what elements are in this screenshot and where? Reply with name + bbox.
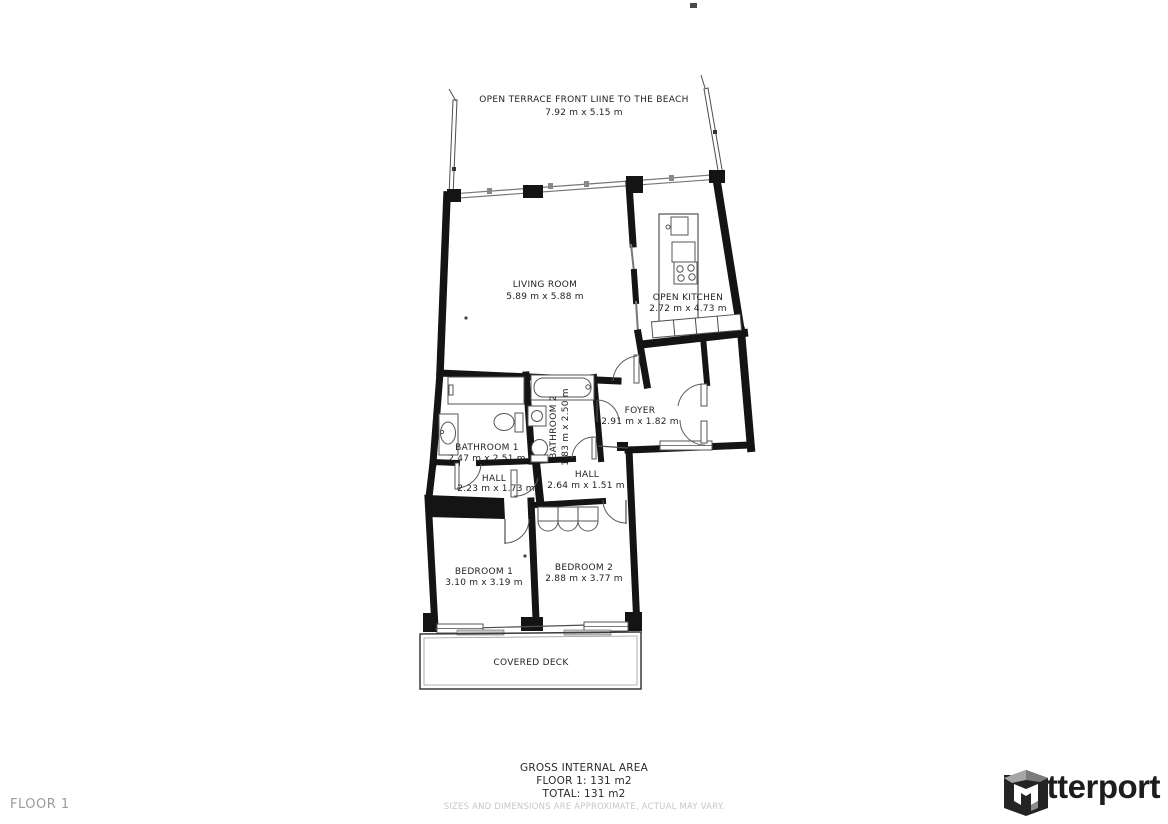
- floor-area-line: FLOOR 1: 131 m2: [384, 775, 784, 788]
- bathroom1-dims: 2.47 m x 2.51 m: [448, 454, 525, 464]
- area-summary: GROSS INTERNAL AREA FLOOR 1: 131 m2 TOTA…: [384, 762, 784, 813]
- shower: [448, 377, 524, 404]
- bedroom2-label: BEDROOM 2: [555, 563, 613, 573]
- burner-icon: [677, 266, 683, 272]
- door-leaf: [701, 421, 707, 443]
- floor-label: FLOOR 1: [10, 797, 70, 812]
- wall-bedroom1-band: [426, 495, 505, 519]
- gross-internal-area-title: GROSS INTERNAL AREA: [384, 762, 784, 775]
- terrace-dims: 7.92 m x 5.15 m: [545, 108, 622, 118]
- total-area-line: TOTAL: 131 m2: [384, 788, 784, 801]
- faucet-icon: [440, 430, 443, 433]
- stove: [674, 262, 697, 284]
- wall-bedroom2-right: [629, 450, 637, 627]
- toilet-icon: [532, 440, 548, 457]
- wall-hall2-bottom: [535, 501, 603, 505]
- bedroom2-dims: 2.88 m x 3.77 m: [545, 574, 622, 584]
- wall-foyer-entry-jamb: [703, 337, 707, 383]
- wall-tick: [713, 130, 717, 134]
- covered-deck-label: COVERED DECK: [493, 658, 569, 668]
- wall-tick: [452, 167, 456, 171]
- wall-outer-right: [741, 331, 751, 448]
- kitchen-sink: [671, 217, 688, 235]
- faucet-icon: [586, 385, 590, 389]
- wall-hall1-left: [429, 463, 433, 497]
- wall-living-left: [440, 195, 447, 373]
- terrace-label: OPEN TERRACE FRONT LIINE TO THE BEACH: [479, 95, 688, 105]
- glass-tick: [487, 188, 492, 194]
- hall1-label: HALL: [482, 474, 506, 484]
- wall-bedroom-divider: [531, 501, 536, 619]
- bathroom1-label: BATHROOM 1: [455, 443, 519, 453]
- scan-point: [523, 554, 526, 557]
- foyer-label: FOYER: [625, 406, 656, 416]
- bedroom1-dims: 3.10 m x 3.19 m: [445, 578, 522, 588]
- burner-icon: [689, 274, 695, 280]
- toilet-tank: [531, 455, 548, 462]
- scan-point: [464, 316, 467, 319]
- open-kitchen-label: OPEN KITCHEN: [653, 293, 723, 303]
- living-room-label: LIVING ROOM: [513, 280, 578, 290]
- hall2-label: HALL: [575, 470, 599, 480]
- wall-divider-kitchen-b: [634, 272, 636, 301]
- wall-bedroom1-left: [428, 498, 435, 628]
- bedroom2-closet: [538, 507, 598, 531]
- bathroom2-dims: 1.83 m x 2.50 m: [561, 388, 571, 465]
- glass-tick: [548, 183, 553, 189]
- floorplan-page: OPEN TERRACE FRONT LIINE TO THE BEACH 7.…: [0, 0, 1168, 824]
- foyer-dims: 2.91 m x 1.82 m: [601, 417, 678, 427]
- door-leaf: [634, 355, 639, 383]
- burner-icon: [688, 265, 694, 271]
- wall-hall-divider: [536, 462, 540, 500]
- shower-control: [449, 385, 453, 395]
- wall-divider-kitchen-a: [629, 184, 633, 244]
- open-kitchen-dims: 2.72 m x 4.73 m: [649, 304, 726, 314]
- faucet-icon: [666, 225, 670, 229]
- floorplan-drawing: OPEN TERRACE FRONT LIINE TO THE BEACH 7.…: [0, 0, 1168, 824]
- burner-icon: [678, 275, 684, 281]
- bedroom1-label: BEDROOM 1: [455, 567, 513, 577]
- glass-tick: [669, 175, 674, 181]
- hall2-dims: 2.64 m x 1.51 m: [547, 481, 624, 491]
- wall-footing: [521, 617, 543, 631]
- door-leaf: [701, 384, 707, 406]
- counter: [672, 242, 695, 262]
- bathroom2-label: BATHROOM 2: [549, 395, 559, 459]
- toilet-tank: [515, 413, 523, 432]
- toilet-icon: [494, 414, 514, 431]
- living-room-dims: 5.89 m x 5.88 m: [506, 292, 583, 302]
- matterport-logo: Matterport: [1002, 768, 1160, 806]
- wall-corner: [423, 613, 437, 632]
- artifact-mark: [690, 3, 697, 8]
- sink-icon: [532, 411, 543, 422]
- glass-tick: [584, 181, 589, 187]
- disclaimer-text: SIZES AND DIMENSIONS ARE APPROXIMATE, AC…: [384, 801, 784, 813]
- facade-glass-wall: [447, 170, 725, 202]
- door-leaf: [592, 437, 596, 459]
- wall-post: [617, 442, 628, 451]
- matterport-logo-icon: [1002, 768, 1049, 818]
- wall-post: [523, 185, 543, 198]
- hall1-dims: 2.23 m x 1.73 m: [457, 484, 534, 494]
